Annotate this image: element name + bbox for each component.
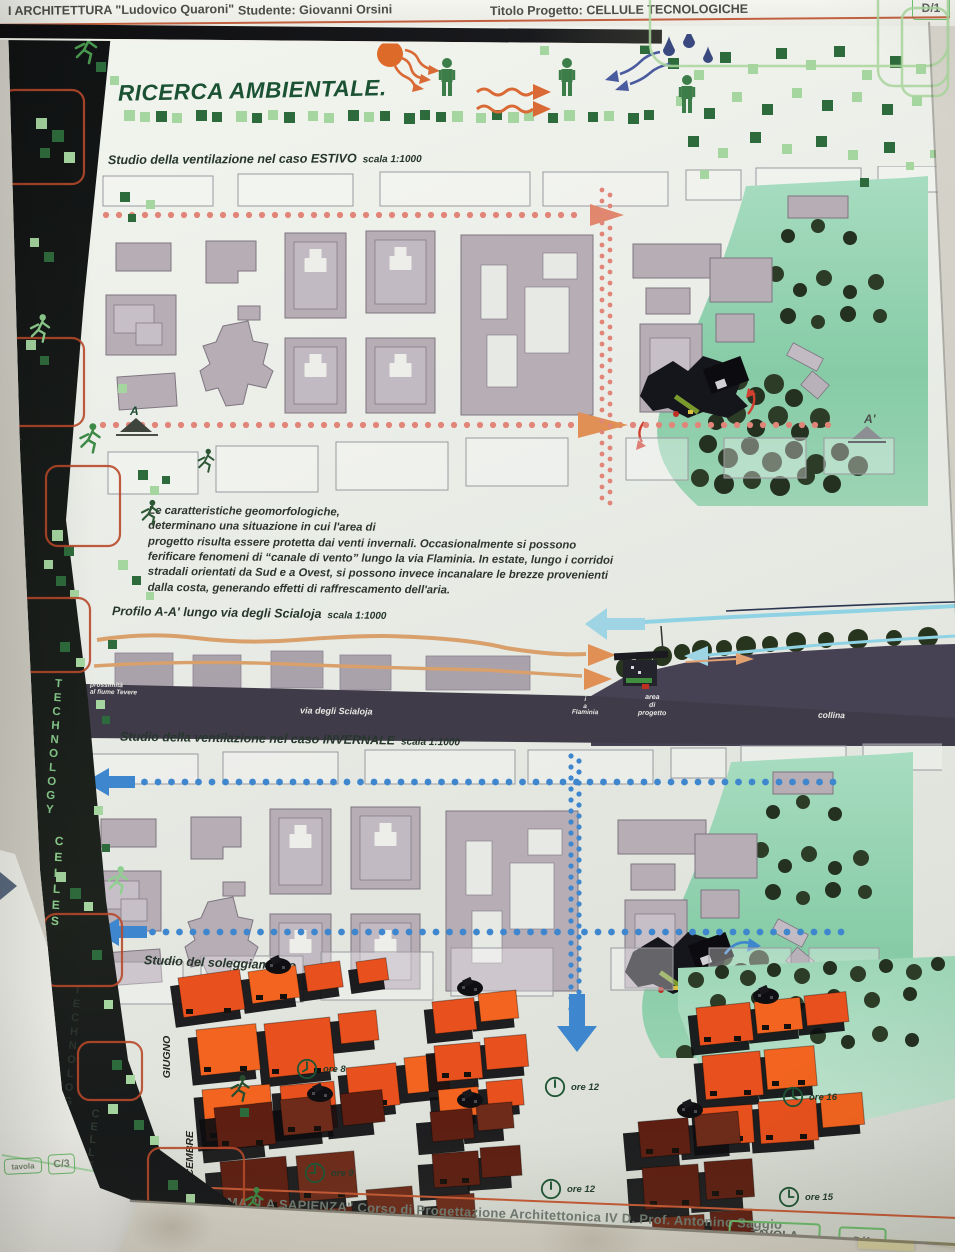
runner-icon — [81, 423, 100, 452]
runner-icon — [109, 866, 127, 894]
photo-of-architecture-poster: tavola C/3 RICERCA AMBIENTALE. Studio de… — [0, 0, 955, 1252]
warm-breeze-arrows — [477, 89, 533, 112]
header-faculty: I ARCHITETTURA "Ludovico Quaroni" — [8, 2, 234, 18]
person-icon — [559, 58, 575, 96]
decorations-layer — [0, 0, 955, 1252]
sheet-number-box: C/3 — [47, 1153, 75, 1174]
green-frame-corners — [640, 0, 955, 150]
poster-sheet: RICERCA AMBIENTALE. Studio della ventila… — [0, 0, 955, 1252]
sun-icon — [377, 41, 403, 67]
person-icon — [439, 58, 455, 96]
runner-icon — [199, 449, 214, 472]
tavola-label-box: tavola — [4, 1157, 43, 1175]
sheet-number: C/3 — [53, 1158, 70, 1171]
green-squares-decor — [26, 44, 945, 1203]
arrow-icon — [0, 872, 17, 900]
sun-ray-arrowheads — [412, 65, 440, 92]
runner-icon — [142, 500, 158, 524]
tavola-label: tavola — [11, 1161, 35, 1171]
header-student: Studente: Giovanni Orsini — [238, 2, 392, 17]
runner-icon — [232, 1075, 249, 1101]
